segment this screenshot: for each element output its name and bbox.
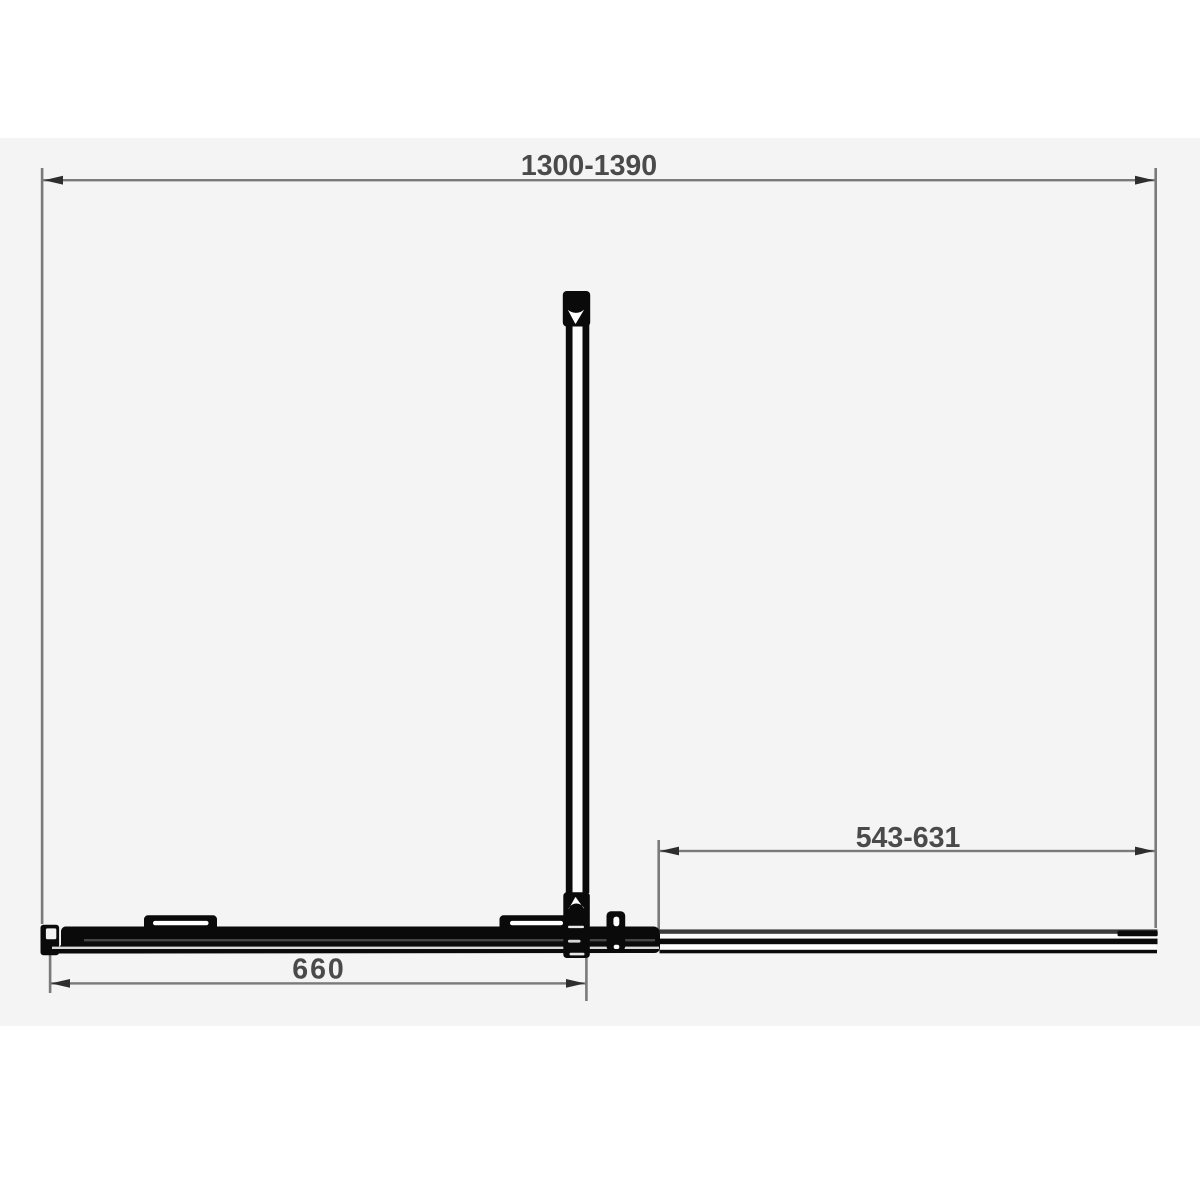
- svg-text:543-631: 543-631: [856, 822, 961, 854]
- svg-text:1300-1390: 1300-1390: [521, 150, 657, 182]
- svg-text:660: 660: [292, 954, 346, 986]
